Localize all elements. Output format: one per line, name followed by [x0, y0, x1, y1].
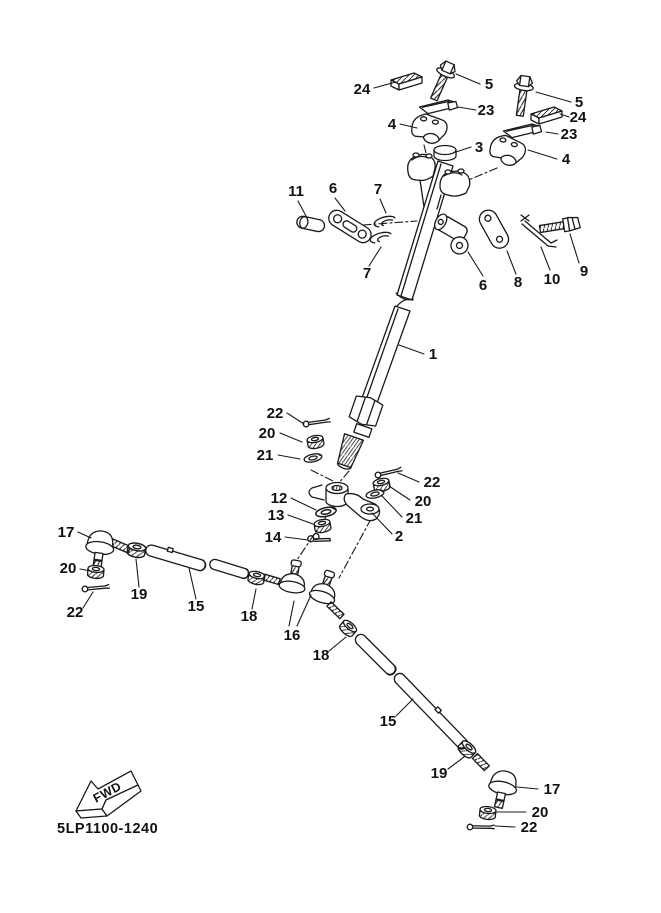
- washer-12: [315, 506, 337, 519]
- snap-ring-bottom: [369, 230, 392, 243]
- callout-8: 8: [507, 251, 522, 291]
- callout-label: 19: [131, 586, 148, 603]
- callout-6-right: 6: [468, 252, 487, 294]
- bolt-left: [425, 59, 459, 103]
- callout-10: 10: [541, 247, 560, 288]
- tie-rod-tube-left-a: [144, 541, 207, 572]
- callout-label: 17: [544, 781, 561, 798]
- callout-18-right: 18: [313, 637, 346, 664]
- tie-rod-end-right: [485, 768, 520, 810]
- callout-9: 9: [570, 234, 588, 280]
- callout-label: 12: [271, 490, 288, 507]
- callout-24-top-left: 24: [354, 81, 396, 98]
- steering-shaft: [334, 161, 453, 471]
- callout-16: 16: [284, 595, 311, 644]
- tie-rod-tube-right-a: [353, 632, 398, 677]
- handlebar-cap-right: [531, 107, 562, 124]
- shaft-spline: [334, 434, 364, 472]
- inner-tie-rod-end-left: [278, 558, 309, 595]
- washer-mid-right: [365, 488, 384, 499]
- callout-label: 14: [265, 529, 282, 546]
- callout-label: 22: [521, 819, 538, 836]
- washer-mid-left: [303, 452, 322, 463]
- callout-22-left: 22: [67, 592, 93, 621]
- callout-label: 18: [241, 608, 258, 625]
- callout-label: 22: [424, 474, 441, 491]
- callout-23-top-right: 23: [546, 126, 577, 143]
- callout-label: 10: [544, 271, 561, 288]
- handlebar-cap-left: [391, 73, 422, 90]
- nut-18-left: [247, 570, 265, 586]
- callout-label: 2: [395, 528, 403, 545]
- callout-6-left: 6: [329, 180, 345, 211]
- drawing-number: 5LP1100-1240: [57, 821, 158, 837]
- callout-label: 6: [329, 180, 337, 197]
- callout-label: 13: [268, 507, 285, 524]
- callout-11: 11: [288, 183, 306, 216]
- callout-15-left: 15: [188, 568, 205, 615]
- inner-tie-rod-end-right: [308, 567, 343, 606]
- callout-label: 6: [479, 277, 487, 294]
- callout-4-top-right: 4: [528, 150, 571, 168]
- tie-rod-tube-right-b: [392, 669, 472, 751]
- nut-18-right: [338, 618, 358, 638]
- cotter-pin-14: [307, 532, 330, 544]
- cap-3: [434, 146, 456, 161]
- callout-label: 7: [374, 181, 382, 198]
- callout-24-top-right: 24: [560, 109, 587, 126]
- cotter-pin-mid-left: [303, 415, 331, 429]
- callout-7-top: 7: [374, 181, 386, 213]
- callout-label: 22: [267, 405, 284, 422]
- callout-14: 14: [265, 529, 308, 546]
- callout-3: 3: [456, 139, 483, 156]
- callout-label: 20: [60, 560, 77, 577]
- callout-label: 16: [284, 627, 301, 644]
- callout-label: 4: [562, 151, 571, 168]
- callout-label: 15: [380, 713, 397, 730]
- callout-18-left: 18: [241, 589, 258, 625]
- callout-17-right: 17: [517, 781, 560, 798]
- callout-label: 19: [431, 765, 448, 782]
- jam-nut-left: [127, 542, 147, 559]
- cotter-pin-tie-rod-right: [467, 822, 494, 832]
- cotter-pin-mid-right: [374, 464, 402, 480]
- callout-label: 3: [475, 139, 483, 156]
- link-plate-8: [476, 207, 512, 252]
- lock-washer-left: [419, 98, 458, 116]
- callout-label: 18: [313, 647, 330, 664]
- callout-22-mid-left: 22: [267, 405, 304, 424]
- callout-label: 24: [570, 109, 587, 126]
- callout-label: 23: [561, 126, 578, 143]
- callout-label: 21: [257, 447, 274, 464]
- callout-23-top-left: 23: [458, 102, 494, 119]
- holder-bracket-left: [326, 207, 374, 245]
- nut-13: [314, 518, 332, 533]
- tie-rod-end-right-stud: [472, 754, 489, 771]
- callout-5-top-left: 5: [456, 74, 493, 93]
- callout-20-mid-left: 20: [259, 425, 302, 442]
- callout-17-left: 17: [58, 524, 91, 541]
- bolt-9: [539, 216, 581, 236]
- tie-rod-tube-left-b: [209, 558, 250, 579]
- steering-exploded-diagram: 24 5 23 4 5 24 23 3 4 11 6 7 7 6 8 10 9 …: [0, 0, 661, 913]
- callout-22-right: 22: [495, 819, 537, 836]
- nut-under-tie-rod-end-left: [87, 565, 104, 579]
- callout-21-mid-left: 21: [257, 447, 300, 464]
- callout-label: 20: [415, 493, 432, 510]
- callout-7-bottom: 7: [363, 247, 381, 282]
- nut-under-tie-rod-end-right: [479, 806, 496, 820]
- callouts: 24 5 23 4 5 24 23 3 4 11 6 7 7 6 8 10 9 …: [58, 74, 589, 836]
- parts-diagram-page: 24 5 23 4 5 24 23 3 4 11 6 7 7 6 8 10 9 …: [0, 0, 661, 913]
- tie-rod-end-left: [83, 529, 116, 570]
- callout-label: 11: [288, 183, 304, 200]
- handlebar-clamp-right: [488, 133, 528, 168]
- inner-tie-rod-left-shaft: [263, 574, 280, 584]
- callout-19-left: 19: [131, 559, 148, 603]
- callout-label: 17: [58, 524, 75, 541]
- fwd-arrow: FWD: [76, 771, 141, 818]
- nut-mid-left: [307, 434, 325, 449]
- callout-label: 21: [406, 510, 423, 527]
- callout-13: 13: [268, 507, 313, 524]
- snap-ring-top: [373, 214, 396, 227]
- inner-tie-rod-right-shaft: [327, 602, 344, 619]
- bolt-right: [510, 75, 534, 117]
- handlebar-clamp-left: [411, 113, 448, 144]
- callout-label: 1: [429, 346, 437, 363]
- callout-20-left: 20: [60, 560, 91, 577]
- callout-label: 5: [485, 76, 493, 93]
- callout-1: 1: [399, 345, 437, 363]
- cotter-pin-tie-rod-left: [82, 581, 110, 593]
- callout-label: 20: [259, 425, 276, 442]
- callout-2: 2: [372, 513, 403, 545]
- callout-label: 9: [580, 263, 588, 280]
- callout-19-right: 19: [431, 757, 464, 782]
- pin-11: [296, 215, 326, 233]
- callout-label: 22: [67, 604, 84, 621]
- callout-label: 23: [478, 102, 495, 119]
- callout-label: 8: [514, 274, 522, 291]
- callout-label: 15: [188, 598, 205, 615]
- callout-15-right: 15: [380, 699, 413, 730]
- callout-22-mid-right: 22: [398, 473, 440, 491]
- callout-label: 7: [363, 265, 371, 282]
- callout-label: 4: [388, 116, 397, 133]
- callout-label: 24: [354, 81, 371, 98]
